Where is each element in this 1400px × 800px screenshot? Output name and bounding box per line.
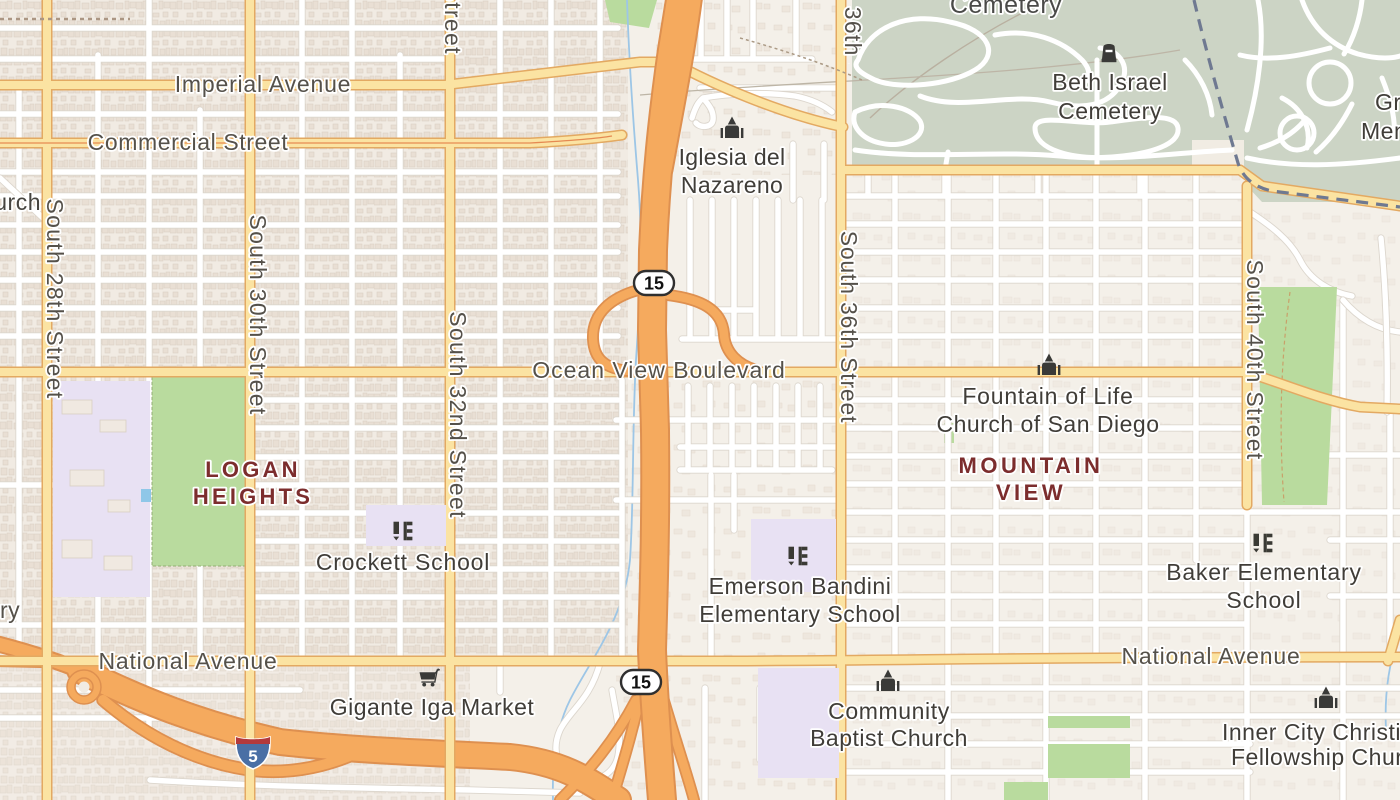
svg-text:5: 5 (248, 747, 257, 766)
svg-text:Inner City Christia: Inner City Christia (1222, 719, 1400, 745)
svg-text:Memorial Park: Memorial Park (1361, 118, 1400, 144)
svg-text:HEIGHTS: HEIGHTS (193, 484, 313, 509)
svg-text:urch: urch (0, 189, 41, 215)
svg-text:Crockett School: Crockett School (316, 549, 490, 575)
svg-text:Fountain of Life: Fountain of Life (962, 383, 1133, 409)
svg-text:South 32nd Street: South 32nd Street (440, 0, 466, 55)
svg-text:Beth Israel: Beth Israel (1052, 69, 1167, 95)
svg-text:ry: ry (0, 597, 20, 623)
svg-text:National Avenue: National Avenue (98, 648, 277, 674)
svg-text:Iglesia del: Iglesia del (679, 144, 786, 170)
svg-text:MOUNTAIN: MOUNTAIN (959, 453, 1104, 478)
svg-text:Emerson Bandini: Emerson Bandini (709, 573, 892, 599)
svg-text:Commercial Street: Commercial Street (88, 129, 289, 155)
svg-text:Gigante Iga Market: Gigante Iga Market (330, 694, 535, 720)
svg-text:School: School (1226, 587, 1301, 613)
svg-text:South 28th Street: South 28th Street (42, 198, 68, 399)
svg-text:Cemetery: Cemetery (950, 0, 1062, 19)
svg-text:Elementary School: Elementary School (699, 601, 901, 627)
svg-text:Church of San Diego: Church of San Diego (936, 411, 1159, 437)
svg-text:Imperial Avenue: Imperial Avenue (175, 71, 352, 97)
svg-text:Greenwood: Greenwood (1375, 89, 1400, 115)
svg-text:South 32nd Street: South 32nd Street (445, 311, 471, 519)
svg-text:South 40th Street: South 40th Street (1242, 259, 1268, 460)
svg-text:Ocean View Boulevard: Ocean View Boulevard (532, 357, 786, 383)
svg-text:VIEW: VIEW (996, 480, 1066, 505)
svg-text:Fellowship Church: Fellowship Church (1231, 744, 1400, 770)
svg-text:Community: Community (828, 698, 950, 724)
svg-text:Cemetery: Cemetery (1058, 98, 1162, 124)
svg-text:Baptist Church: Baptist Church (810, 725, 968, 751)
svg-text:South 30th Street: South 30th Street (245, 214, 271, 415)
svg-text:15: 15 (631, 673, 651, 693)
svg-text:Baker Elementary: Baker Elementary (1166, 559, 1362, 585)
svg-text:National Avenue: National Avenue (1121, 643, 1300, 669)
svg-text:South 36th Street: South 36th Street (836, 231, 862, 424)
svg-text:LOGAN: LOGAN (205, 457, 300, 482)
svg-text:Nazareno: Nazareno (681, 172, 783, 198)
svg-text:15: 15 (644, 274, 664, 294)
